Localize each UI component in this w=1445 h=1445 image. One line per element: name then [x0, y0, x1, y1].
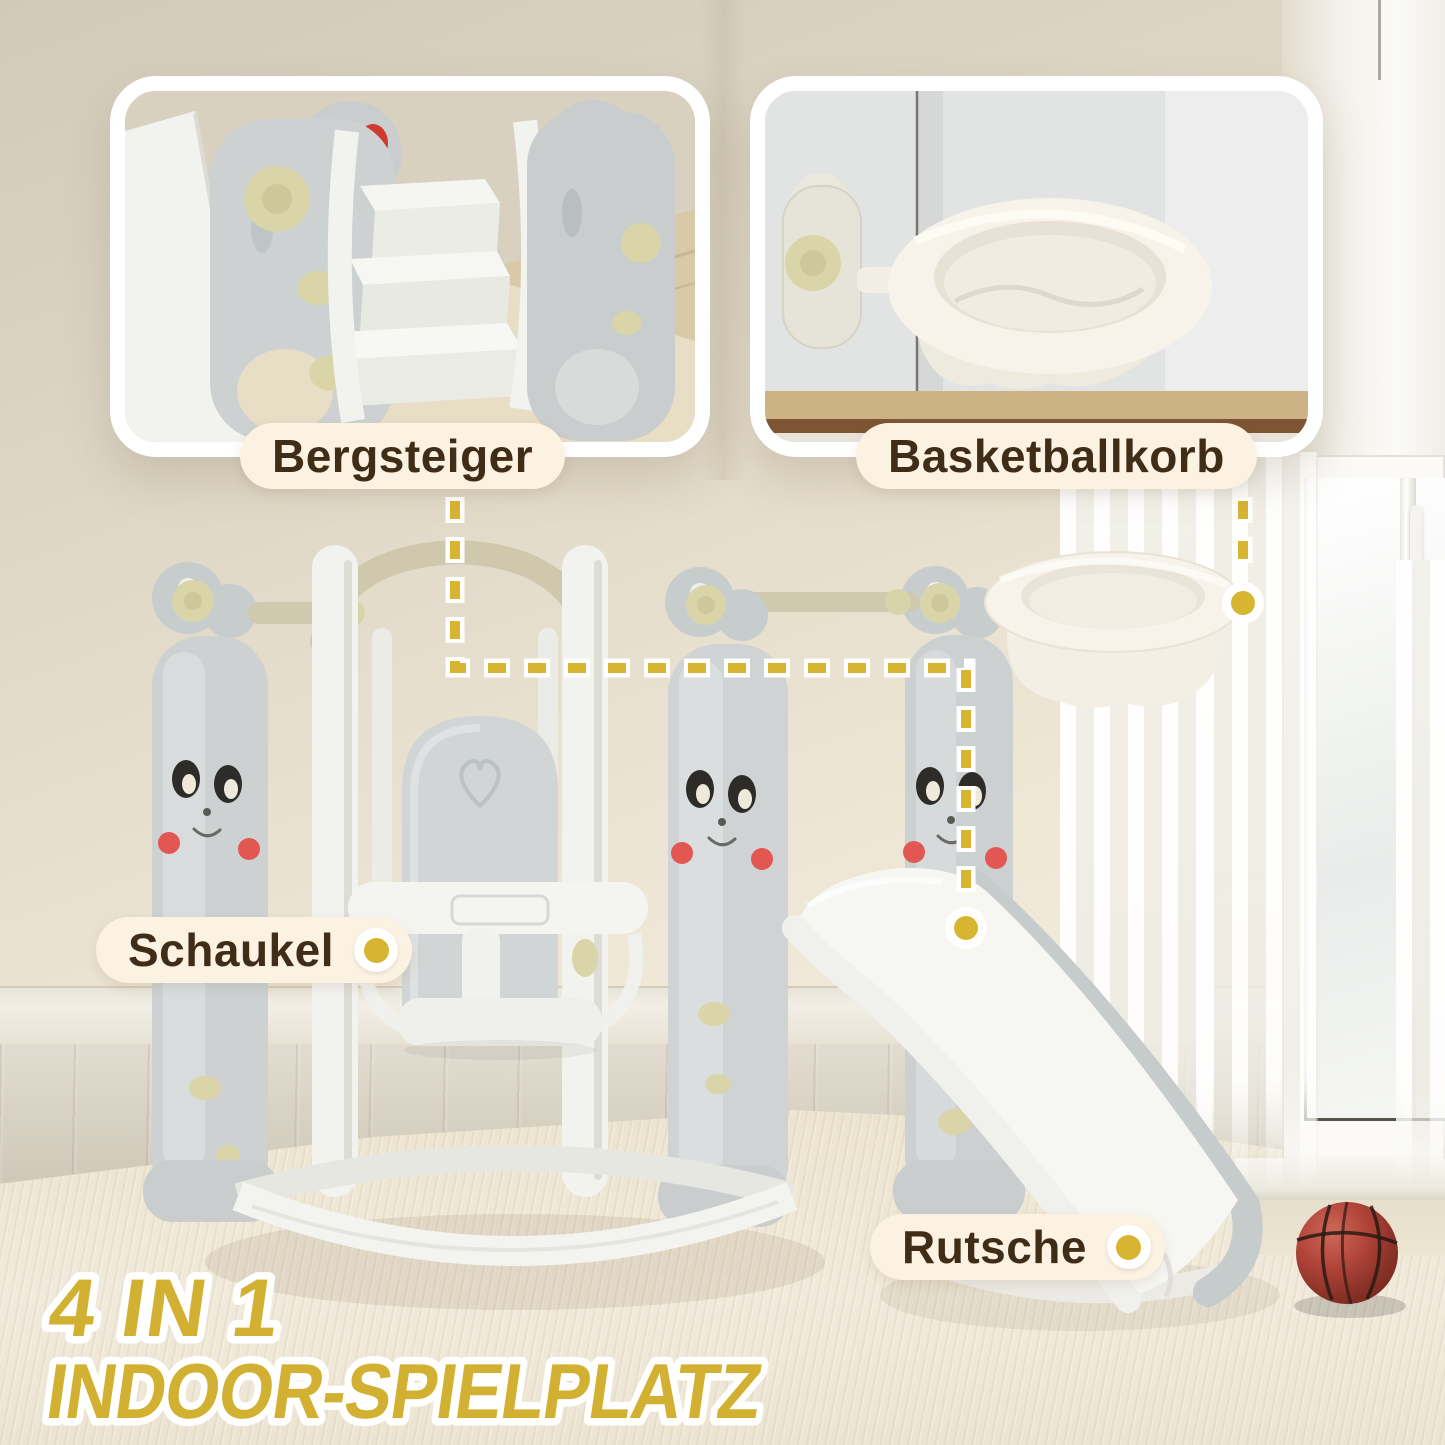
marketing-image: Bergsteiger Basketballkorb Schaukel Ruts… — [0, 0, 1445, 1445]
climber-closeup-illustration — [125, 91, 695, 442]
headline-line2: INDOOR-SPIELPLATZ — [42, 1347, 767, 1435]
yellow-dot-marker — [354, 928, 398, 972]
swing-left-post — [143, 562, 279, 1222]
headline: 4 IN 1 INDOOR-SPIELPLATZ — [24, 1248, 1014, 1443]
label-basketballkorb: Basketballkorb — [856, 423, 1257, 489]
headline-line1: 4 IN 1 — [43, 1262, 287, 1354]
label-basketballkorb-text: Basketballkorb — [888, 433, 1225, 479]
yellow-dot-marker — [1107, 1225, 1151, 1269]
label-bergsteiger-text: Bergsteiger — [272, 433, 533, 479]
basketball-hoop — [985, 552, 1241, 708]
label-schaukel: Schaukel — [96, 917, 412, 983]
inset-photo-climber — [110, 76, 710, 457]
label-schaukel-text: Schaukel — [128, 927, 334, 973]
label-bergsteiger: Bergsteiger — [240, 423, 565, 489]
basketball — [1294, 1202, 1406, 1318]
dashed-connector-basketballkorb — [1222, 497, 1264, 624]
inset-photo-hoop — [750, 76, 1323, 457]
hoop-closeup-illustration — [765, 91, 1308, 442]
